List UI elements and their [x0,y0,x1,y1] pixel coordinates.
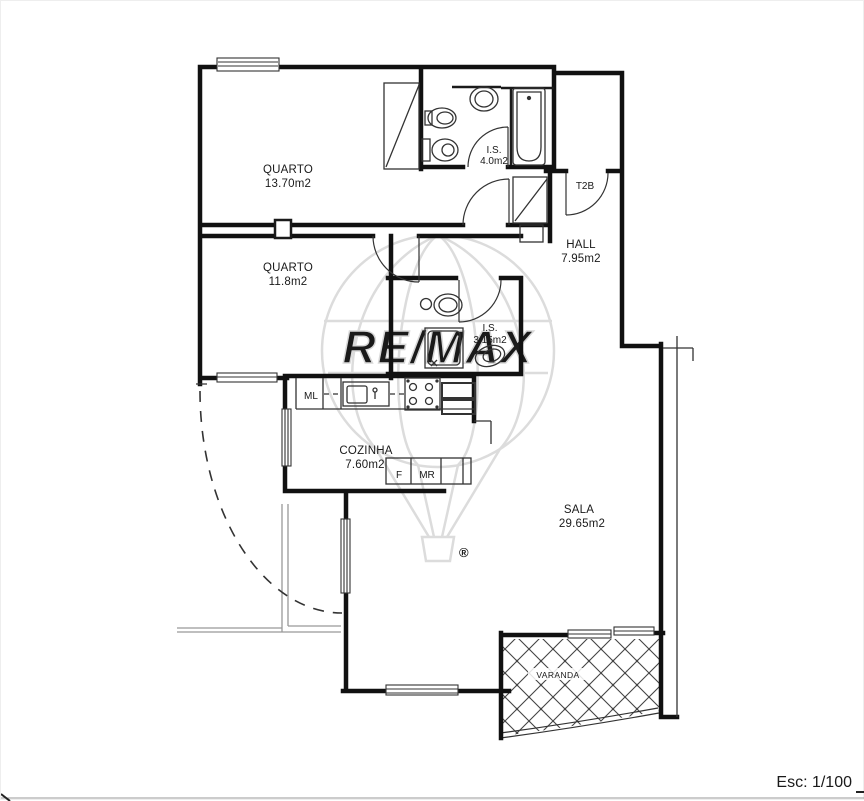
window-sala-left [341,519,350,593]
window-cozinha [282,409,291,466]
bathroom1-bidet [425,108,456,128]
bathroom2-sink [421,294,463,316]
room-label-sala: SALA [564,504,594,516]
scale-label: Esc: 1/100 [776,774,852,791]
room-label-hall: HALL [566,239,596,251]
room-label-quarto1: QUARTO [263,164,313,176]
area-label-quarto2: 11.8m2 [269,276,308,288]
balloon-basket [422,537,454,561]
partitions [275,87,554,238]
area-label-quarto1: 13.70m2 [265,178,311,190]
appliance-label-microwave: MR [419,470,435,481]
room-label-quarto2: QUARTO [263,262,313,274]
door-quarto1 [463,179,509,225]
bathroom1-toilet [422,139,458,161]
wall-pillar [275,220,291,238]
dashed-site-boundary-arc [200,391,342,613]
area-label-is2: 3.15m2 [473,335,507,346]
floor-plan-sheet: RE/MAX ® [0,0,864,800]
area-label-hall: 7.95m2 [561,253,601,265]
room-label-is2: I.S. [482,323,497,334]
fixtures [296,83,547,484]
registered-trademark-symbol: ® [459,545,469,560]
window-quarto1 [217,58,279,71]
room-label-varanda: VARANDA [536,670,579,680]
unit-type-label: T2B [576,181,595,192]
wardrobe-quarto1 [384,83,419,169]
kitchen-stove [405,378,440,410]
room-label-cozinha: COZINHA [339,445,392,457]
appliance-label-fridge: F [396,470,402,481]
door-entry-t2b [566,173,608,215]
area-label-is1: 4.0m2 [480,156,508,167]
area-label-cozinha: 7.60m2 [345,459,385,471]
floor-plan-canvas: RE/MAX ® [1,1,864,801]
area-label-sala: 29.65m2 [559,518,605,530]
kitchen-opening-step [474,421,491,444]
room-label-is1: I.S. [486,145,501,156]
appliance-label-washing-machine: ML [304,391,318,402]
exterior-bay-outline [177,504,341,632]
entry-closet [513,177,547,242]
bathroom1-bathtub [513,88,545,165]
bathroom1-sink [470,87,498,111]
